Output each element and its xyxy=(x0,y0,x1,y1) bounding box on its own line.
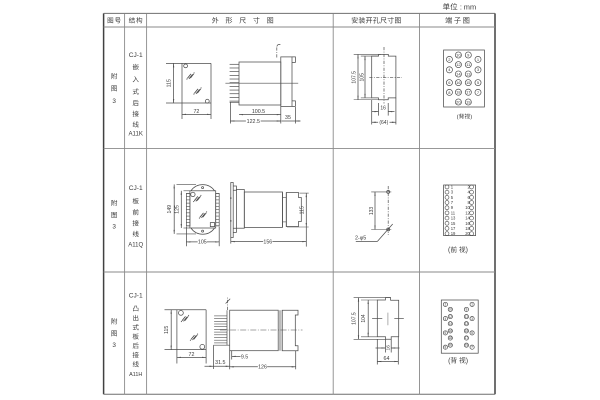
svg-text:18: 18 xyxy=(456,90,461,95)
svg-text:A11H: A11H xyxy=(129,372,142,378)
svg-text:104: 104 xyxy=(361,314,367,323)
svg-text:2-φ5: 2-φ5 xyxy=(355,235,366,241)
svg-text:20: 20 xyxy=(448,343,452,347)
svg-text:64: 64 xyxy=(384,356,390,362)
svg-text:122.5: 122.5 xyxy=(247,119,260,125)
svg-text:8: 8 xyxy=(444,345,446,349)
svg-text:3: 3 xyxy=(112,223,116,230)
svg-text:125: 125 xyxy=(174,205,180,214)
svg-text:13: 13 xyxy=(466,71,471,76)
svg-text:CJ-1: CJ-1 xyxy=(129,185,143,192)
svg-text:35: 35 xyxy=(285,115,291,121)
svg-text:19: 19 xyxy=(465,343,469,347)
svg-text:16: 16 xyxy=(385,345,391,351)
svg-text:): ) xyxy=(466,247,468,254)
svg-text:100.5: 100.5 xyxy=(252,109,265,115)
svg-text:72: 72 xyxy=(193,109,199,115)
svg-text:13: 13 xyxy=(465,322,469,326)
svg-text:19: 19 xyxy=(466,99,471,104)
svg-text:107.5: 107.5 xyxy=(352,71,358,84)
svg-text:17: 17 xyxy=(466,90,471,95)
svg-text:15: 15 xyxy=(465,329,469,333)
svg-text:7: 7 xyxy=(471,345,473,349)
svg-text:12: 12 xyxy=(448,315,452,319)
svg-text:3: 3 xyxy=(112,342,116,349)
svg-text:107.5: 107.5 xyxy=(352,312,358,325)
svg-text:9: 9 xyxy=(465,308,467,312)
svg-text:17: 17 xyxy=(465,336,469,340)
svg-text:CJ-1: CJ-1 xyxy=(129,292,143,299)
svg-text:10: 10 xyxy=(448,308,452,312)
svg-text:10: 10 xyxy=(456,52,461,57)
svg-text:A11K: A11K xyxy=(128,131,142,138)
svg-text:2: 2 xyxy=(444,303,446,307)
svg-text:115: 115 xyxy=(167,79,173,87)
svg-text:(64): (64) xyxy=(379,120,388,126)
svg-text:31.5: 31.5 xyxy=(215,360,225,366)
svg-text:14: 14 xyxy=(448,322,452,326)
svg-text:16: 16 xyxy=(448,329,452,333)
svg-text:105: 105 xyxy=(198,240,207,246)
svg-text:(: ( xyxy=(457,114,459,120)
svg-text:126: 126 xyxy=(258,365,267,371)
svg-text:20: 20 xyxy=(465,231,470,236)
svg-text:A11Q: A11Q xyxy=(128,243,143,249)
svg-text:11: 11 xyxy=(465,315,469,319)
svg-text:1: 1 xyxy=(471,303,473,307)
svg-text:15: 15 xyxy=(466,80,471,85)
svg-text:CJ-1: CJ-1 xyxy=(129,52,143,59)
svg-text:156: 156 xyxy=(263,239,272,245)
svg-text:3: 3 xyxy=(471,317,473,321)
svg-text:12: 12 xyxy=(456,62,461,67)
svg-text:115: 115 xyxy=(164,326,170,334)
svg-text:mm: mm xyxy=(464,2,476,11)
svg-text:16: 16 xyxy=(456,80,461,85)
svg-text:149: 149 xyxy=(167,205,173,214)
svg-text:): ) xyxy=(470,114,472,120)
svg-text:14: 14 xyxy=(456,71,461,76)
svg-text:133: 133 xyxy=(369,207,375,216)
svg-text::: : xyxy=(460,2,462,11)
svg-text:115: 115 xyxy=(299,206,305,214)
svg-text:9.5: 9.5 xyxy=(241,354,248,360)
svg-text:5: 5 xyxy=(471,331,473,335)
svg-text:18: 18 xyxy=(448,336,452,340)
svg-text:20: 20 xyxy=(456,99,461,104)
svg-text:105: 105 xyxy=(360,73,366,82)
svg-text:19: 19 xyxy=(451,231,456,236)
svg-text:16: 16 xyxy=(380,106,386,112)
svg-text:3: 3 xyxy=(112,98,116,105)
svg-text:6: 6 xyxy=(444,331,446,335)
svg-text:72: 72 xyxy=(189,352,195,358)
svg-text:): ) xyxy=(466,358,468,365)
svg-text:4: 4 xyxy=(444,317,446,321)
